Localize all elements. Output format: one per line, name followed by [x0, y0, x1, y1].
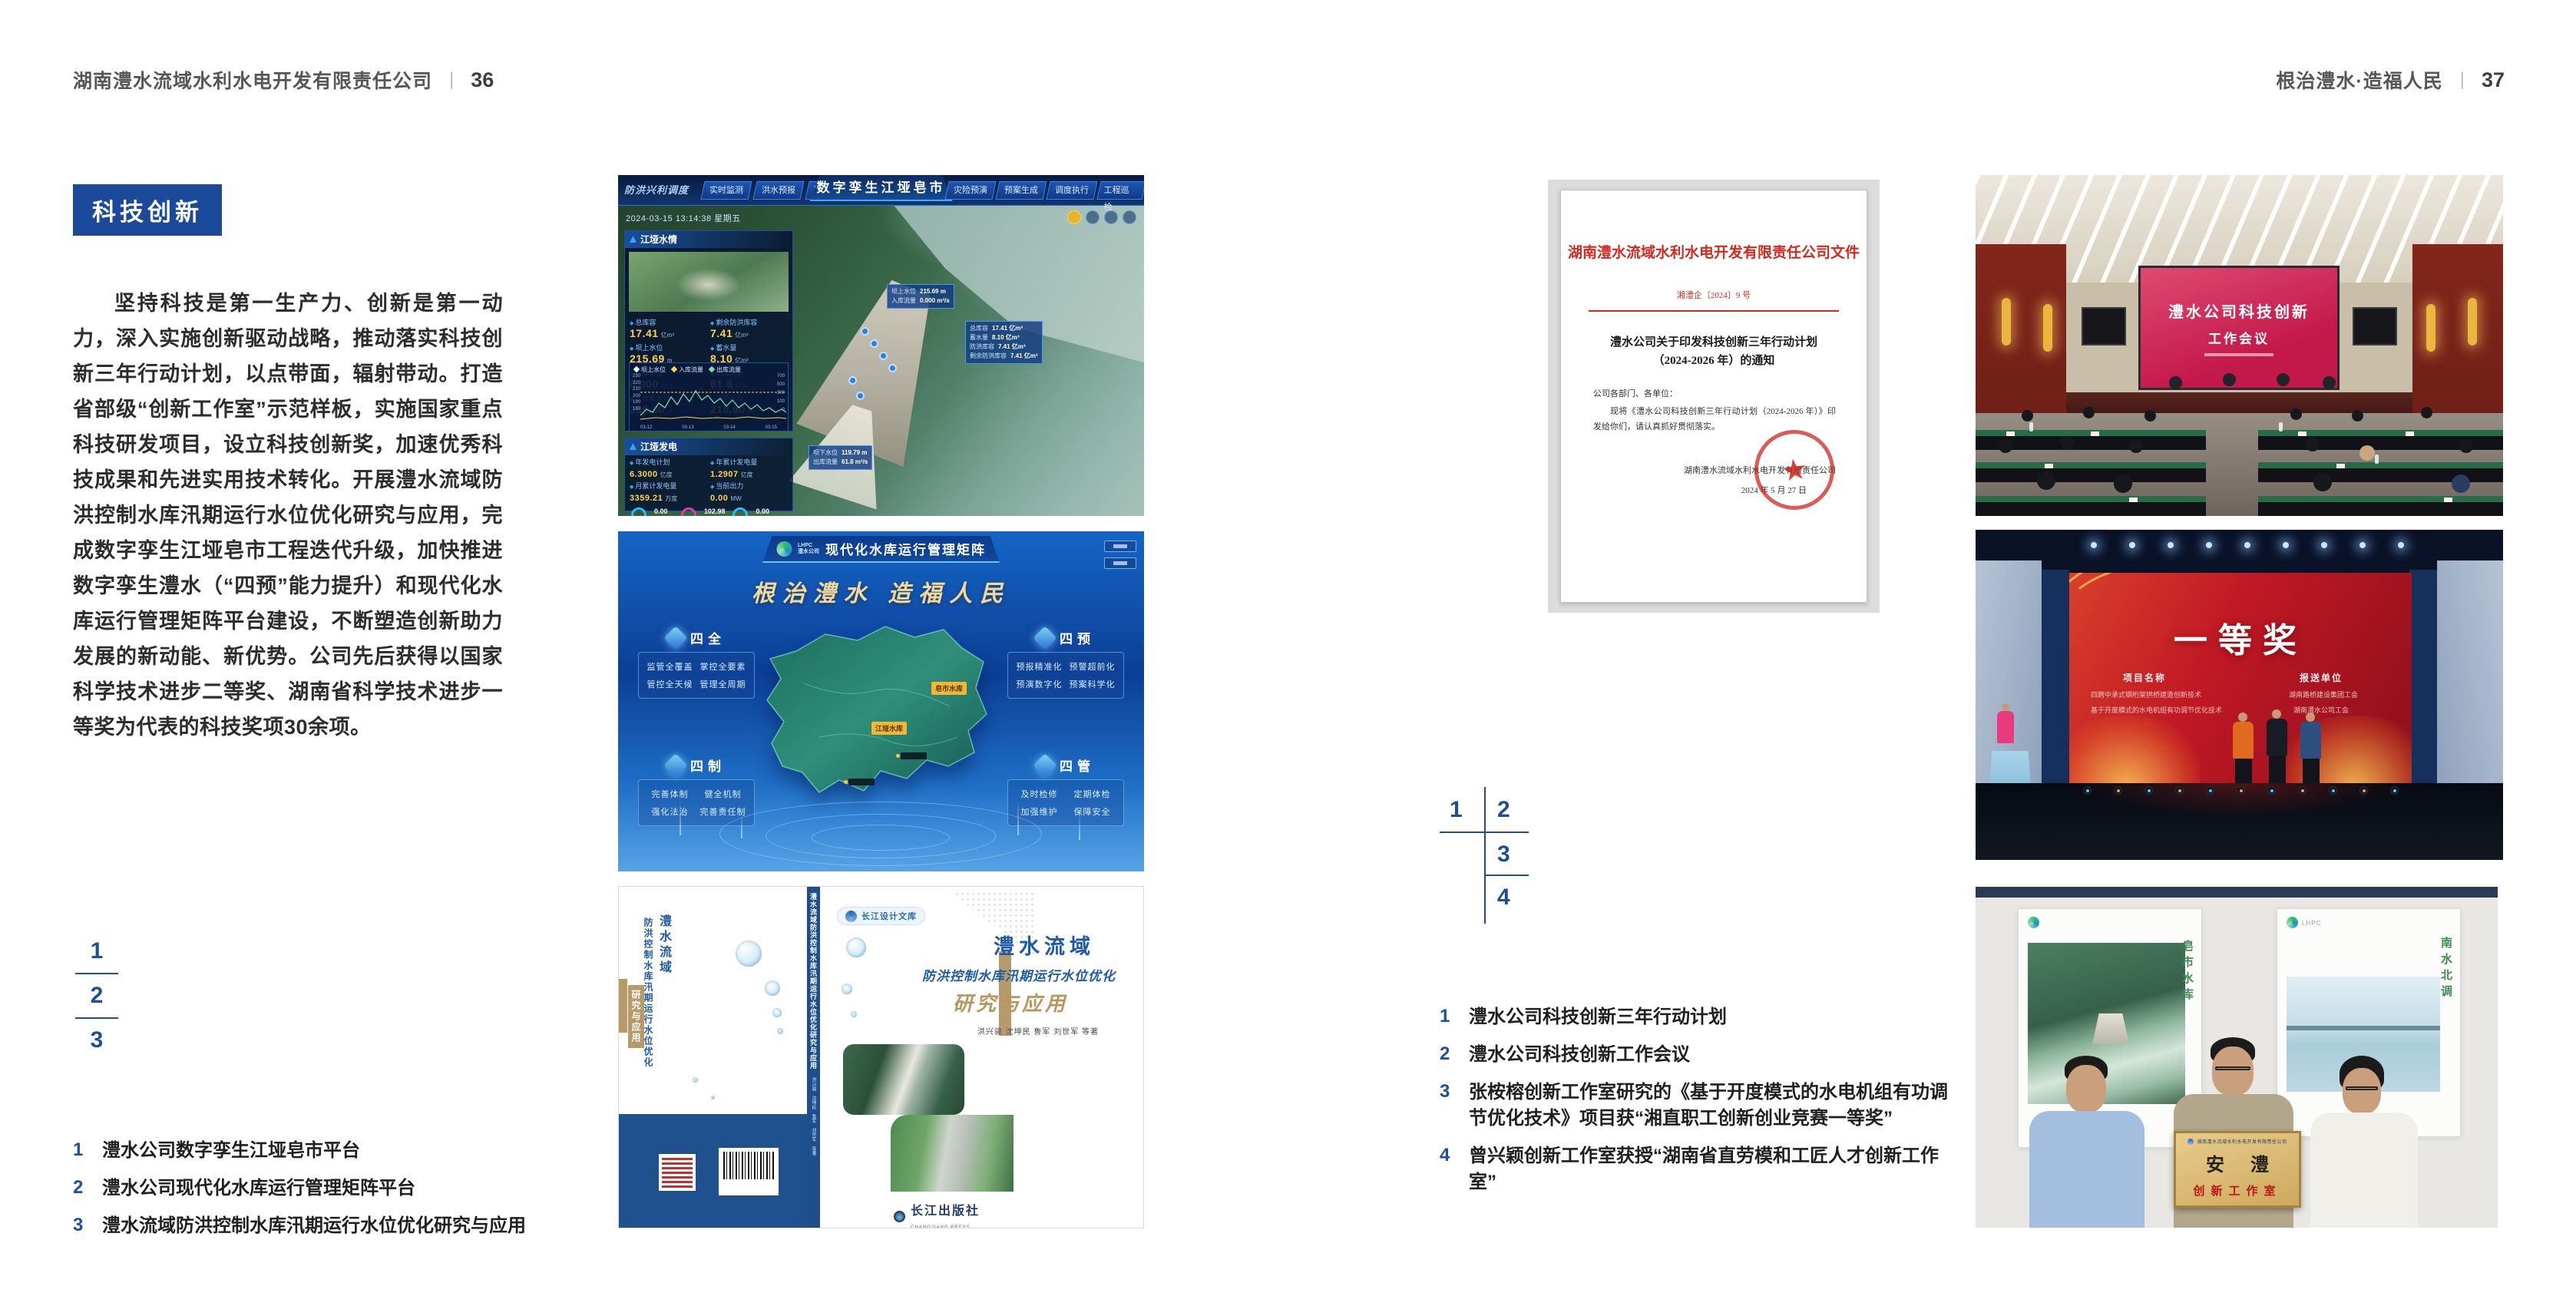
speaker-head: [2323, 376, 2336, 389]
right-header-title: 根治澧水·造福人民: [2276, 66, 2442, 94]
left-header-title: 湖南澧水流域水利水电开发有限责任公司: [73, 66, 432, 94]
presenter-dark-suit: [2267, 719, 2287, 755]
water-bottle: [2375, 455, 2379, 464]
presenter-head: [2272, 709, 2281, 719]
light-pillar: [1017, 800, 1019, 835]
stage-light-fixture: [2114, 786, 2122, 795]
reservoir-marker: 江垭水库: [871, 722, 907, 735]
figure-digital-twin-dashboard: 防洪兴利调度 实时监测 洪水预报 防洪预警 数字孪生江垭皂市 灾险预演 预案生成…: [618, 175, 1144, 516]
tan-edge-block: [619, 979, 627, 1033]
tab-label: 预案生成: [1004, 182, 1038, 199]
caption-item: 2 澧水公司科技创新工作会议: [1440, 1042, 1954, 1068]
tag-label: 防洪库容: [970, 342, 994, 352]
audience-head: [2306, 438, 2320, 451]
audience-desk-row: [2258, 496, 2503, 516]
tick: 190: [633, 400, 640, 405]
figure-number: 2: [1497, 797, 1510, 823]
series-badge: 长江设计文库: [837, 907, 925, 925]
spotlight: [2398, 542, 2404, 548]
tag-value: 0.000 m³/s: [920, 296, 950, 306]
wall-sconce: [2426, 304, 2435, 352]
audience-head: [2022, 410, 2033, 422]
dashboard-tab: 调度执行: [1046, 181, 1097, 200]
panel-title: 江垭水情: [625, 231, 792, 248]
caption-text: 澧水流域防洪控制水库汛期运行水位优化研究与应用: [102, 1213, 526, 1239]
stat-label: 坝上水位: [630, 342, 707, 352]
chart-y-axis-left: 230 220 210 200 190 180: [633, 374, 640, 412]
light-pillar: [1079, 814, 1080, 840]
water-bubble: [736, 941, 762, 967]
gauge-ring: [681, 508, 696, 516]
matrix-panel-siguan: 四管 及时检修 定期体检 加强维护 保障安全: [1007, 755, 1124, 826]
figure-innovation-workshop-photo: 皂市水库 LHPC 南水北调 湖南澧水流域水利水电开发有限责任公司 安澧 创新工…: [1976, 887, 2498, 1228]
awardee-blue-jacket: [2300, 722, 2321, 759]
chart-y-axis-right: 700 500 300 100 0: [777, 374, 785, 412]
workshop-plaque: 湖南澧水流域水利水电开发有限责任公司 安澧 创新工作室: [2174, 1131, 2301, 1208]
dashboard-tab: 灾险预演: [944, 181, 996, 200]
qr-code: [659, 1154, 696, 1191]
awardee-head: [2238, 713, 2247, 722]
stat-unit: 亿度: [741, 471, 753, 478]
audience-head: [2129, 439, 2143, 453]
caption-number: 1: [73, 1138, 102, 1162]
tag-value: 7.41 亿m³: [998, 342, 1026, 352]
lhpc-logo-icon: [2028, 917, 2039, 928]
institution-icon: [663, 753, 687, 777]
plaque-subtitle: 创新工作室: [2193, 1182, 2281, 1199]
tick: 100: [777, 399, 785, 404]
tag-row: 出库流量61.8 m³/s: [813, 458, 868, 467]
dashboard-tab: 实时监测: [700, 181, 752, 200]
front-title-line1: 澧水流域: [994, 930, 1095, 960]
wall-tv: [2353, 307, 2397, 346]
seal-star: ★: [1779, 451, 1810, 488]
spotlight: [2206, 542, 2212, 548]
panel-heading: 四管: [1007, 755, 1124, 775]
panel-item: 强化法治: [645, 805, 695, 818]
tick: 500: [777, 382, 785, 387]
spotlight: [2321, 542, 2327, 548]
body-paragraph: 坚持科技是第一生产力、创新是第一动力，深入实施创新驱动战略，推动落实科技创新三年…: [73, 286, 503, 745]
poster-left-calligraphy: 皂市水库: [2179, 940, 2195, 1004]
stat-value: 17.41: [630, 327, 659, 339]
legend-label: 出库流量: [716, 366, 741, 373]
tick: 220: [633, 381, 640, 385]
panel-item: 监管全覆盖: [645, 660, 695, 673]
gauge-ring: [631, 508, 646, 516]
figure-number-divider: [75, 973, 118, 974]
dam-valley-scene: [2028, 943, 2185, 1104]
publisher-name: 长江出版社: [911, 1205, 980, 1218]
wall-sconce: [2002, 298, 2011, 346]
caption-text: 澧水公司科技创新三年行动计划: [1469, 1004, 1727, 1030]
caption-item: 1 澧水公司数字孪生江垭皂市平台: [73, 1138, 580, 1164]
figure-number: 3: [1497, 841, 1510, 868]
person3-head: [2343, 1068, 2381, 1114]
matrix-slogan: 根治澧水 造福人民: [618, 574, 1144, 608]
tab-label: 实时监测: [709, 182, 743, 199]
spotlight: [2244, 542, 2250, 548]
audience-head: [2421, 407, 2432, 418]
caption-item: 4 曾兴颖创新工作室获授“湖南省直劳模和工匠人才创新工作室”: [1440, 1143, 1954, 1195]
stage-light-fixture: [2206, 786, 2214, 795]
caption-number: 1: [1440, 1004, 1469, 1029]
tab-label: 洪水预报: [762, 182, 795, 199]
cabinet-top-strip: [1976, 887, 2498, 898]
tag-row: 坝下水位119.79 m: [813, 448, 868, 458]
gauge-value: 102.98: [704, 508, 726, 515]
stat-label: 年发电计划: [630, 457, 707, 467]
stat-unit: 亿m³: [735, 332, 748, 339]
section-title-badge: 科技创新: [73, 184, 222, 236]
panel-item: 预案科学化: [1067, 678, 1117, 690]
legend-label: 入库流量: [679, 366, 703, 373]
button-glyph: [1113, 561, 1127, 565]
screen-title-line2: 工作会议: [2208, 328, 2270, 347]
water-bubble: [693, 1077, 698, 1083]
caption-text: 曾兴颖创新工作室获授“湖南省直劳模和工匠人才创新工作室”: [1469, 1143, 1954, 1195]
panel-item: 管控全天候: [645, 678, 695, 690]
stat-value: 7.41: [710, 327, 732, 339]
person2-glasses: [2215, 1066, 2250, 1070]
light-lens: [2332, 789, 2335, 792]
unit-row: 湖南澧水公司工会: [2293, 705, 2349, 715]
unit-row: 湖南路桥建设集团工会: [2289, 689, 2358, 699]
reservoir-marker: 皂市水库: [931, 682, 967, 695]
matrix-header: LHPC 澧水公司 现代化水库运行管理矩阵: [762, 536, 1000, 563]
stage-light-fixture: [2298, 786, 2306, 795]
audience-head: [1999, 439, 2012, 453]
figure-award-stage-photo: 一等奖 项目名称 四跨中承式钢桁架拱桥建造创新技术 基于开度模式的水电机组有功调…: [1976, 530, 2503, 860]
gauge-readout: 0.001号机组: [654, 508, 673, 516]
front-title-line3: 研究与应用: [953, 988, 1068, 1017]
panel-title: 四制: [690, 755, 726, 775]
stat-unit: 亿度: [660, 471, 673, 478]
figure-number-divider: [75, 1017, 118, 1019]
back-title-line3: 研究与应用: [628, 985, 644, 1048]
maintenance-icon: [1033, 753, 1057, 777]
panel-heading: 四预: [1007, 628, 1124, 647]
publisher-block: 长江出版社 CHANGJIANG PRESS: [894, 1200, 980, 1228]
figure-grid-vline: [1484, 787, 1486, 924]
figure-number: 2: [75, 983, 118, 1009]
project-row: 四跨中承式钢桁架拱桥建造创新技术: [2091, 689, 2201, 699]
menu-button: [1104, 557, 1136, 569]
project-column-header: 项目名称: [2123, 671, 2166, 684]
stage-light-fixture: [2267, 786, 2276, 795]
bridge-deck: [2287, 1026, 2440, 1030]
tag-label: 坝下水位: [813, 448, 838, 458]
figure-number: 4: [1497, 884, 1510, 911]
project-row: 基于开度模式的水电机组有功调节优化技术: [2091, 705, 2222, 715]
light-lens: [2086, 789, 2089, 792]
audience-head: [2452, 474, 2470, 493]
audience-head: [2459, 439, 2473, 453]
figure-grid-hline: [1484, 875, 1529, 876]
stat-item: 剩余防洪库容7.41亿m³: [710, 317, 788, 341]
light-lens: [2301, 789, 2304, 792]
qr-pattern: [662, 1157, 693, 1188]
figure-number: 1: [1450, 797, 1463, 823]
lhpc-logo-icon: [776, 541, 792, 557]
spillway-photo: [891, 1115, 1014, 1192]
stat-value: 3359.21: [630, 494, 663, 503]
stat-label: 剩余防洪库容: [710, 317, 788, 327]
logo-text-en: LHPC: [798, 543, 812, 548]
tag-value: 119.79 m: [842, 448, 867, 458]
stat-label: 蓄水量: [710, 342, 788, 352]
panel-item: 及时检修: [1014, 788, 1064, 800]
paper: [2444, 498, 2452, 502]
first-prize-text: 一等奖: [2069, 613, 2412, 662]
spotlight: [2359, 542, 2366, 548]
small-station-marker: [901, 752, 927, 759]
audience-head: [2290, 408, 2302, 420]
left-figure-number-column: 1 2 3: [75, 938, 118, 1053]
water-bubble: [777, 1028, 783, 1034]
ripple-ring: [812, 825, 950, 851]
water-bubble: [851, 1011, 857, 1017]
gauge-label: 1号机组: [654, 515, 673, 516]
tag-value: 17.41 亿m³: [992, 324, 1023, 333]
gauge-value: 0.00: [654, 508, 673, 515]
downstream-level-tag: 坝下水位119.79 m 出库流量61.8 m³/s: [809, 445, 872, 470]
audience-desk-row: [1976, 462, 2206, 482]
authors-line: 洪兴骏 沈坤民 鲁军 刘世军 等著: [977, 1025, 1099, 1037]
tick: 0: [777, 408, 785, 412]
right-page-header: 根治澧水·造福人民 | 37: [2276, 66, 2505, 94]
person1-head: [2066, 1065, 2106, 1113]
book-front-cover: 长江设计文库 澧水流域 防洪控制水库汛期运行水位优化 研究与应用 洪兴骏 沈坤民…: [820, 887, 1144, 1228]
stage-floor: [1976, 783, 2503, 860]
screen-title-line1: 澧水公司科技创新: [2168, 299, 2310, 322]
awardee-orange-jacket: [2233, 722, 2254, 759]
magazine-spread: 湖南澧水流域水利水电开发有限责任公司 | 36 根治澧水·造福人民 | 37 科…: [0, 0, 2576, 1306]
stage-column-left: [2042, 570, 2069, 800]
gauge-value: 0.00: [756, 508, 775, 515]
panel-heading: 四全: [638, 628, 755, 647]
tick: 300: [777, 391, 785, 395]
legend-item: 入库流量: [672, 365, 703, 374]
caption-number: 3: [1440, 1080, 1469, 1104]
panel-item: 掌控全要素: [698, 660, 748, 673]
left-page-header: 湖南澧水流域水利水电开发有限责任公司 | 36: [73, 66, 494, 94]
stage-truss: [1976, 530, 2503, 574]
paper: [2006, 431, 2015, 436]
wall-sconce: [2043, 304, 2052, 352]
gauge-readout: 0.003号机组: [756, 508, 775, 516]
unit-column-header: 报送单位: [2300, 671, 2343, 684]
tag-value: 7.41 亿m³: [1010, 352, 1038, 361]
tag-label: 蓄水量: [970, 333, 988, 342]
speaker-head: [2169, 376, 2182, 389]
tag-row: 坝上水位215.69 m: [891, 287, 950, 296]
paper: [2298, 431, 2306, 436]
plaque-header-text: 湖南澧水流域水利水电开发有限责任公司: [2197, 1138, 2287, 1145]
light-lens: [2270, 789, 2273, 792]
stat-value: 1.2907: [710, 470, 739, 479]
upstream-level-tag: 坝上水位215.69 m 入库流量0.000 m³/s: [887, 284, 954, 309]
tag-row: 蓄水量8.10 亿m³: [970, 333, 1038, 342]
plaque-logo-icon: [2187, 1139, 2194, 1145]
light-lens: [2209, 789, 2212, 792]
stat-value: 0.00: [710, 494, 728, 503]
panel-title: 江垭发电: [625, 438, 792, 455]
gauge-label: 3号机组: [756, 515, 775, 516]
turbine-gauges: 0.001号机组 102.982号机组 0.003号机组: [625, 506, 792, 516]
water-bubble: [765, 980, 780, 996]
small-station-marker: [848, 779, 875, 785]
caption-text: 澧水公司科技创新工作会议: [1469, 1042, 1690, 1068]
figure-reservoir-matrix-platform: LHPC 澧水公司 现代化水库运行管理矩阵 根治澧水 造福人民 四全 监管全覆盖…: [618, 531, 1144, 871]
dashboard-tab: 洪水预报: [752, 181, 804, 200]
weather-icon: [1067, 210, 1081, 224]
figure-book-cover: 澧水流域 防洪控制水库汛期运行水位优化 研究与应用 澧水流域防洪控制水库汛期运行…: [618, 886, 1144, 1228]
audience-head: [2083, 407, 2095, 418]
panel-item: 加强维护: [1014, 805, 1064, 818]
caption-text: 澧水公司现代化水库运行管理矩阵平台: [102, 1175, 415, 1202]
legend-swatch: [671, 366, 677, 372]
back-title-line1: 澧水流域: [654, 914, 673, 976]
water-level-sparkline: [640, 377, 786, 422]
tick: 03-14: [723, 425, 735, 430]
panel-item: 预报精准化: [1014, 660, 1064, 673]
figure-official-document: 湖南澧水流域水利水电开发有限责任公司文件 湘澧企〔2024〕9 号 澧水公司关于…: [1548, 180, 1880, 613]
spotlight: [2168, 542, 2174, 548]
gold-glow-dome: [2069, 716, 2200, 783]
stage-light-fixture: [2083, 786, 2092, 795]
stage-light-fixture: [2237, 786, 2245, 795]
gate-pin: [879, 352, 888, 360]
document-page: 湖南澧水流域水利水电开发有限责任公司文件 湘澧企〔2024〕9 号 澧水公司关于…: [1560, 190, 1867, 603]
panel-item: 保障安全: [1067, 805, 1117, 818]
caption-item: 2 澧水公司现代化水库运行管理矩阵平台: [73, 1175, 580, 1202]
forecast-icon: [1033, 626, 1057, 650]
panel-title: 四预: [1060, 628, 1095, 647]
stat-item: 月累计发电量3359.21万度: [630, 481, 707, 504]
series-name: 长江设计文库: [861, 910, 917, 922]
stat-label: 当前出力: [710, 481, 788, 491]
front-title-line2: 防洪控制水库汛期运行水位优化: [922, 965, 1116, 984]
presenter-legs: [2269, 755, 2286, 785]
awardee-head: [2306, 713, 2315, 722]
gate-pin: [870, 339, 878, 348]
paper: [2045, 464, 2053, 468]
caption-number: 4: [1440, 1143, 1469, 1168]
person1-blue-polo: [2029, 1111, 2144, 1228]
tag-row: 入库流量0.000 m³/s: [891, 296, 950, 306]
stat-item: 当前出力0.00MW: [710, 481, 788, 504]
speaker-head: [2223, 373, 2236, 386]
audience-head: [2060, 436, 2074, 450]
capacity-tag: 总库容17.41 亿m³ 蓄水量8.10 亿m³ 防洪库容7.41 亿m³ 剩余…: [965, 321, 1043, 364]
button-glyph: [1113, 544, 1127, 548]
panel-title: 四全: [690, 628, 726, 647]
panel-item: 定期体检: [1067, 788, 1117, 800]
tag-row: 防洪库容7.41 亿m³: [970, 342, 1038, 352]
water-bubble: [772, 1008, 782, 1017]
panel-items: 预报精准化 预警超前化 预演数字化 预案科学化: [1007, 652, 1124, 699]
gauge-label: 2号机组: [704, 515, 726, 516]
paper: [2129, 498, 2138, 502]
dam-shape: [2092, 1013, 2129, 1044]
stat-value: 6.3000: [630, 470, 658, 479]
light-lens: [2148, 789, 2151, 792]
marker-label: 皂市水库: [935, 685, 963, 693]
tick: 03-12: [640, 425, 652, 430]
host-pink-dress: [1997, 711, 2014, 743]
document-number: 湘澧企〔2024〕9 号: [1561, 289, 1867, 301]
light-pillar: [741, 812, 742, 838]
figure-meeting-photo: 澧水公司科技创新 工作会议: [1976, 175, 2503, 516]
light-lens: [2363, 789, 2366, 792]
alert-icon: [1086, 210, 1100, 224]
tag-label: 坝上水位: [891, 287, 916, 296]
water-bottle: [2029, 422, 2033, 431]
spotlight: [2129, 542, 2135, 548]
caption-number: 3: [73, 1213, 102, 1238]
tag-label: 入库流量: [891, 296, 916, 306]
gauge-ring: [732, 508, 748, 516]
panel-item: 完善体制: [645, 788, 695, 800]
header-separator: |: [2460, 69, 2465, 91]
tab-label: 调度执行: [1055, 182, 1089, 199]
audience-head: [2352, 410, 2363, 422]
series-logo-icon: [845, 911, 857, 922]
spotlight: [2091, 542, 2097, 548]
tag-label: 剩余防洪库容: [970, 352, 1007, 361]
water-bubble: [846, 937, 866, 957]
tag-value: 8.10 亿m³: [992, 333, 1020, 342]
wall-tv: [2082, 307, 2126, 346]
tag-value: 215.69 m: [920, 287, 946, 296]
paper: [2091, 431, 2099, 436]
panel-items: 监管全覆盖 掌控全要素 管控全天候 管理全周期: [638, 652, 755, 699]
right-caption-list: 1 澧水公司科技创新三年行动计划 2 澧水公司科技创新工作会议 3 张桉榕创新工…: [1440, 1004, 1954, 1207]
stat-label: 年累计发电量: [710, 457, 788, 467]
host-head: [2002, 703, 2009, 711]
speaker-head: [2277, 373, 2290, 386]
light-lens: [2240, 789, 2243, 792]
chart-x-axis: 03-12 03-13 03-14 03-15: [630, 425, 788, 430]
tag-label: 总库容: [970, 324, 988, 333]
basin-terrain-map: [750, 614, 1011, 822]
dam-valley-photo: [843, 1044, 964, 1115]
publisher-names: 长江出版社 CHANGJIANG PRESS: [911, 1200, 980, 1228]
person2-head: [2212, 1046, 2254, 1096]
monitor-icon: [663, 626, 687, 650]
header-separator: |: [449, 69, 454, 91]
panel-item: 预警超前化: [1067, 660, 1117, 673]
caption-item: 3 张桉榕创新工作室研究的《基于开度模式的水电机组有功调节优化技术》项目获“湘直…: [1440, 1080, 1954, 1132]
stat-unit: 亿m³: [661, 332, 674, 339]
gate-pin: [888, 364, 897, 372]
caption-text: 张桉榕创新工作室研究的《基于开度模式的水电机组有功调节优化技术》项目获“湘直职工…: [1469, 1080, 1954, 1132]
panel-title: 四管: [1060, 755, 1095, 775]
panel-heading: 四制: [638, 755, 755, 775]
matrix-title: 现代化水库运行管理矩阵: [825, 539, 986, 558]
spine-authors: 洪兴骏 沈坤民 鲁军 刘世军 等著: [810, 1077, 817, 1156]
person3-glasses: [2346, 1086, 2378, 1090]
stat-label: 月累计发电量: [630, 481, 707, 491]
audience-head: [2037, 471, 2055, 490]
logo-text-cn: 澧水公司: [798, 549, 819, 554]
audience-head: [2144, 410, 2156, 422]
tab-label: 灾险预演: [954, 182, 987, 199]
plaque-header-row: 湖南澧水流域水利水电开发有限责任公司: [2187, 1138, 2287, 1145]
publisher-name-en: CHANGJIANG PRESS: [911, 1225, 970, 1228]
gate-pin: [848, 376, 857, 385]
